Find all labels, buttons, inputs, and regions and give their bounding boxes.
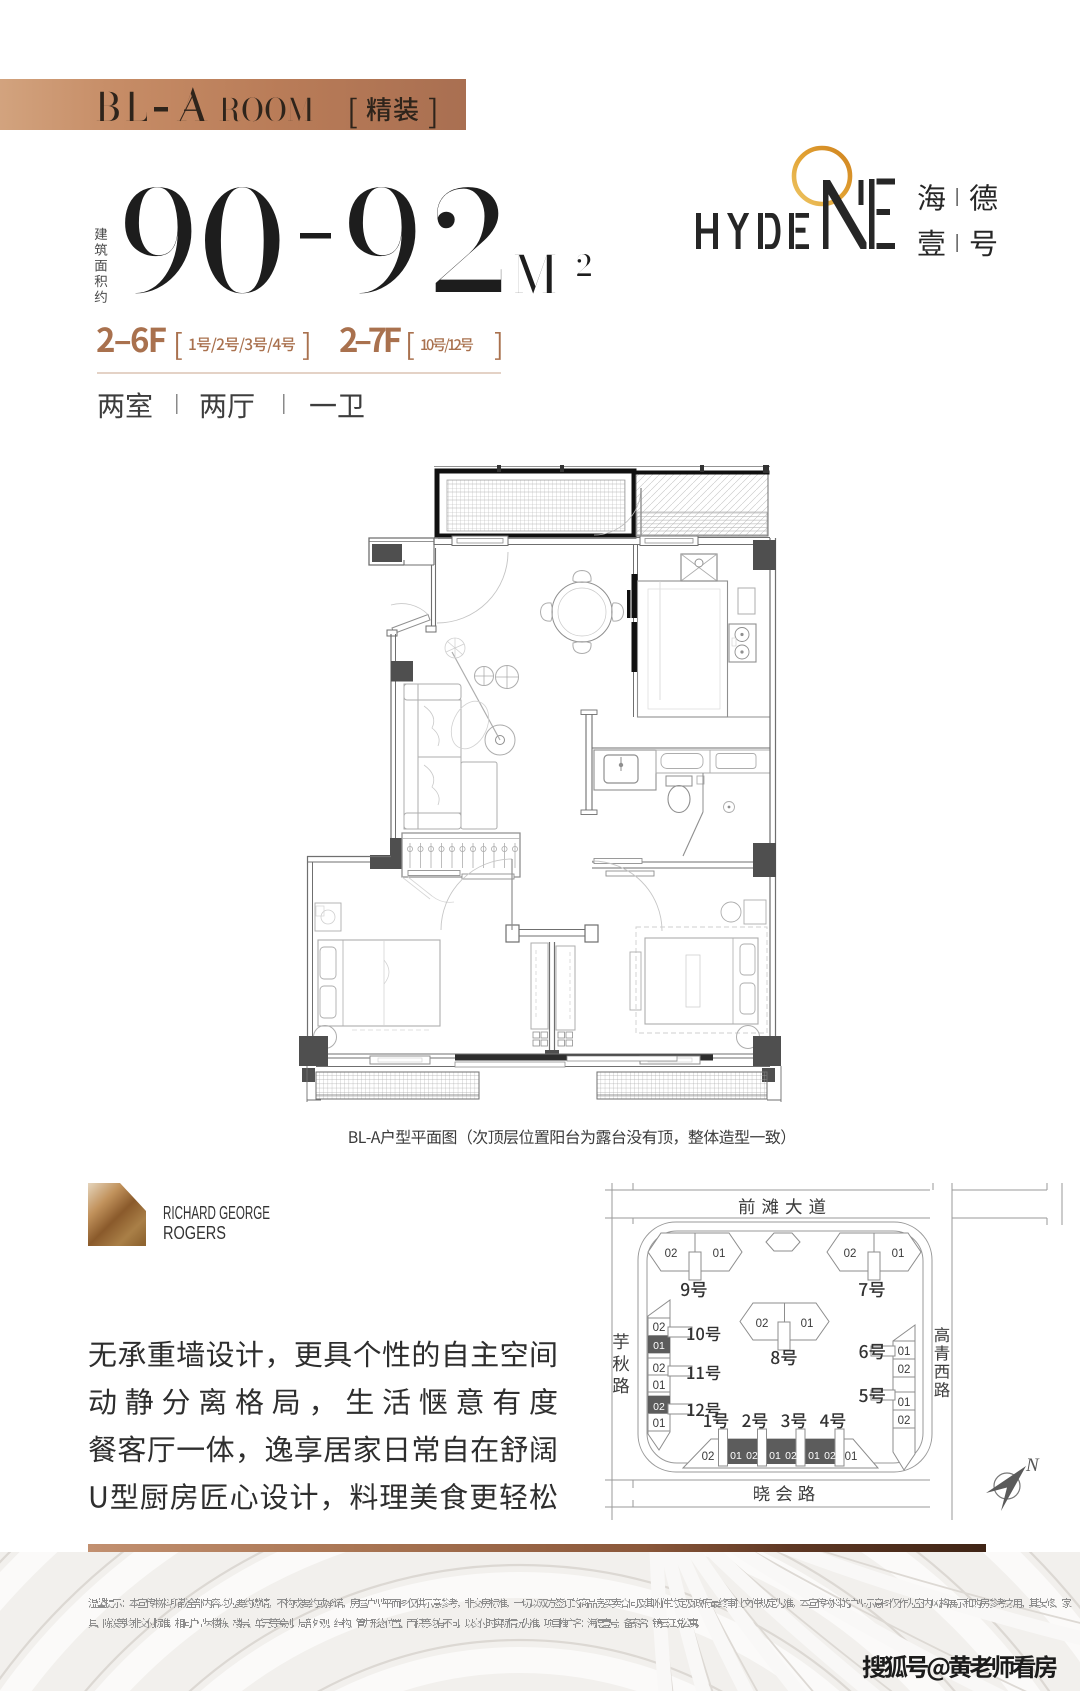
- svg-text:02: 02: [824, 1450, 836, 1462]
- svg-text:01: 01: [769, 1450, 781, 1462]
- svg-text:02: 02: [702, 1451, 715, 1463]
- svg-text:02: 02: [785, 1450, 797, 1462]
- svg-text:01: 01: [653, 1340, 665, 1352]
- svg-text:01: 01: [801, 1318, 814, 1330]
- svg-text:01: 01: [808, 1450, 820, 1462]
- svg-text:02: 02: [756, 1318, 769, 1330]
- svg-text:01: 01: [653, 1418, 666, 1430]
- svg-text:01: 01: [898, 1346, 911, 1358]
- svg-text:01: 01: [730, 1450, 742, 1462]
- svg-text:N: N: [1025, 1455, 1040, 1476]
- svg-text:01: 01: [653, 1380, 666, 1392]
- svg-text:02: 02: [898, 1415, 911, 1427]
- svg-text:01: 01: [713, 1248, 726, 1260]
- svg-text:01: 01: [892, 1248, 905, 1260]
- svg-text:ROGERS: ROGERS: [163, 1223, 226, 1243]
- svg-text:02: 02: [844, 1248, 857, 1260]
- svg-text:01: 01: [898, 1397, 911, 1409]
- svg-text:02: 02: [653, 1322, 666, 1334]
- svg-text:02: 02: [653, 1401, 665, 1413]
- svg-text:02: 02: [746, 1450, 758, 1462]
- svg-text:02: 02: [665, 1248, 678, 1260]
- svg-text:02: 02: [898, 1364, 911, 1376]
- svg-text:01: 01: [845, 1451, 858, 1463]
- svg-text:RICHARD GEORGE: RICHARD GEORGE: [163, 1203, 270, 1223]
- svg-text:02: 02: [653, 1363, 666, 1375]
